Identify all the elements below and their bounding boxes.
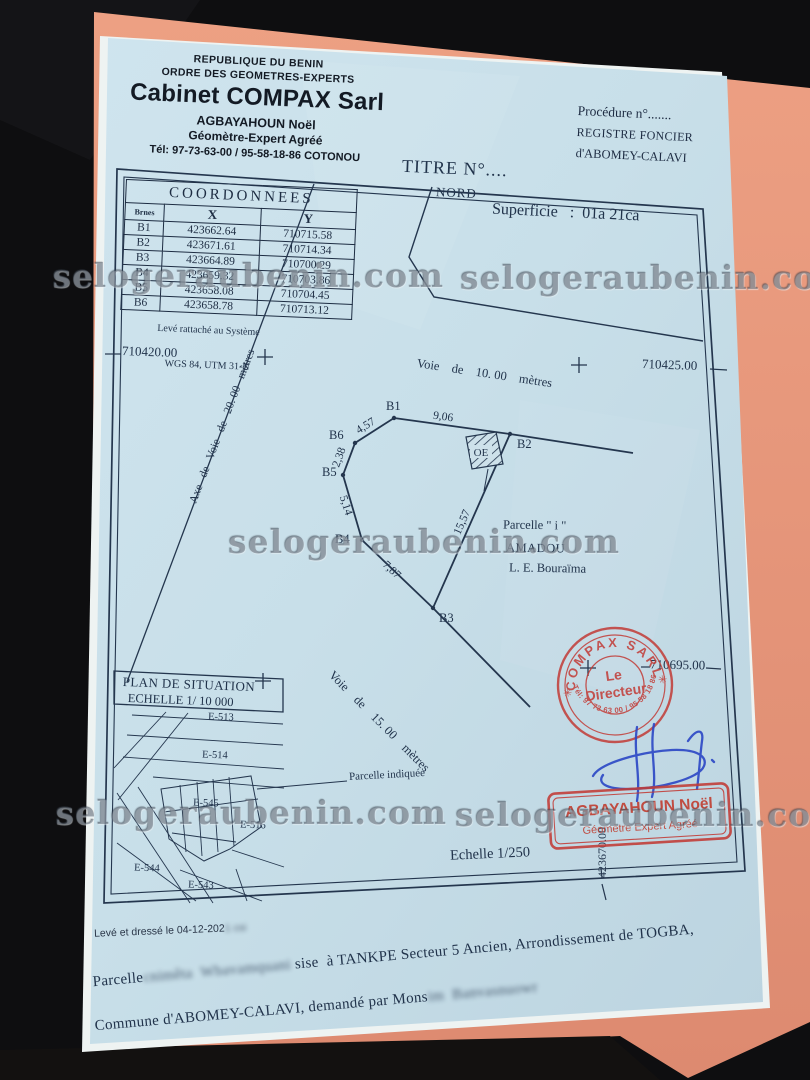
stamp-star-right-icon: ✳ xyxy=(657,674,668,687)
boundary-ext-b3 xyxy=(433,608,530,707)
watermark-middle: selogeraubenin.com xyxy=(228,522,620,561)
watermark-top-left: selogeraubenin.com xyxy=(52,256,444,295)
boundary-ext-b2 xyxy=(510,434,633,453)
watermark-bottom-left: selogeraubenin.com xyxy=(55,793,447,832)
watermark-top-right: selogeraubenin.com xyxy=(460,258,810,297)
round-stamp-center-1: Le xyxy=(604,666,623,684)
stamp-star-left-icon: ✳ xyxy=(562,687,573,700)
round-stamp-compax: COMPAX SARL Tél: 97 73 63 00 / 95 58 18 … xyxy=(551,621,680,750)
photo-of-survey-document: { "watermark": { "text": "selogeraubenin… xyxy=(0,0,810,1080)
oe-label: OE xyxy=(474,447,489,459)
watermark-bottom-right: selogeraubenin.com xyxy=(455,795,810,834)
grid-crosses xyxy=(255,349,596,689)
situation-title-box xyxy=(114,671,283,712)
